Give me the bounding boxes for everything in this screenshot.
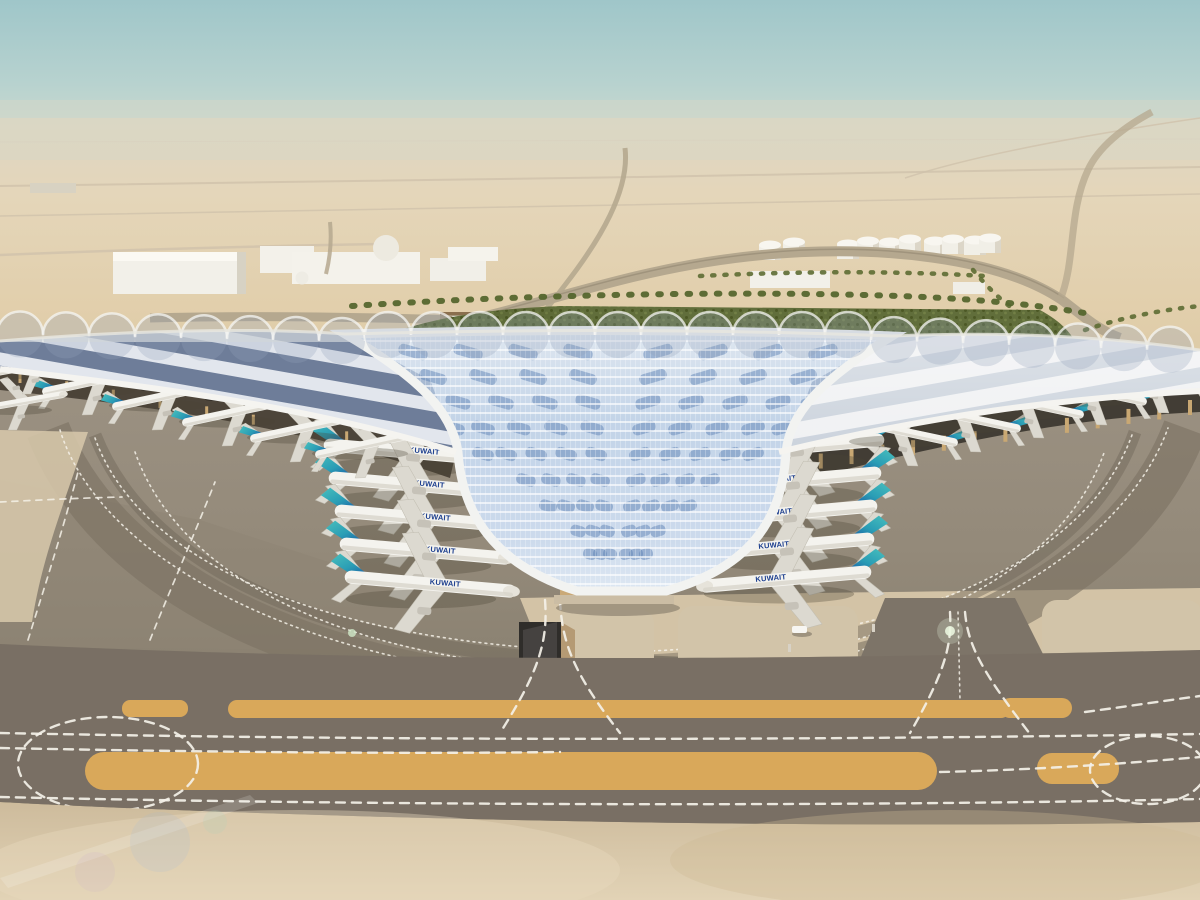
flare-orb — [203, 810, 227, 834]
post — [872, 624, 875, 632]
flare-orb — [75, 852, 115, 892]
building — [448, 247, 498, 261]
yellow-strip — [122, 700, 188, 717]
airport-aerial-rendering: KUWAITKUWAITKUWAITKUWAITKUWAITKUWAITKUWA… — [0, 0, 1200, 900]
yellow-patch — [1037, 753, 1119, 784]
haze-blend — [0, 100, 1200, 160]
building — [430, 258, 486, 281]
flare-dot — [348, 629, 356, 637]
post — [788, 644, 791, 652]
fuel-tank-top — [979, 234, 1001, 243]
small-dome — [296, 272, 309, 285]
facade-column — [1126, 409, 1130, 424]
fuel-tank-top — [783, 238, 805, 247]
warehouse-shade — [237, 252, 246, 294]
yellow-patch — [1000, 698, 1072, 718]
yellow-strip-wide — [85, 752, 937, 790]
shed — [953, 282, 985, 294]
yellow-strip-long — [228, 700, 1010, 718]
terminal-support-building — [292, 252, 420, 284]
service-vehicle — [792, 626, 807, 633]
fuel-tank-top — [879, 238, 901, 247]
facade-column — [1065, 418, 1069, 433]
facade-column — [345, 431, 348, 441]
taxiway-band-texture — [0, 644, 1200, 825]
distant-building — [30, 183, 76, 193]
fuel-tank-top — [759, 241, 781, 250]
flare-halo — [937, 618, 963, 644]
fuel-tank-top — [942, 235, 964, 244]
facade-column — [1188, 400, 1192, 415]
fuel-tank-top — [857, 237, 879, 246]
warehouse-roof — [113, 252, 245, 261]
entrance-steps — [554, 595, 674, 604]
scene-canvas: KUWAITKUWAITKUWAITKUWAITKUWAITKUWAITKUWA… — [0, 0, 1200, 900]
dome-shade — [373, 235, 399, 261]
fuel-tank-top — [899, 235, 921, 244]
flare-orb — [130, 812, 190, 872]
